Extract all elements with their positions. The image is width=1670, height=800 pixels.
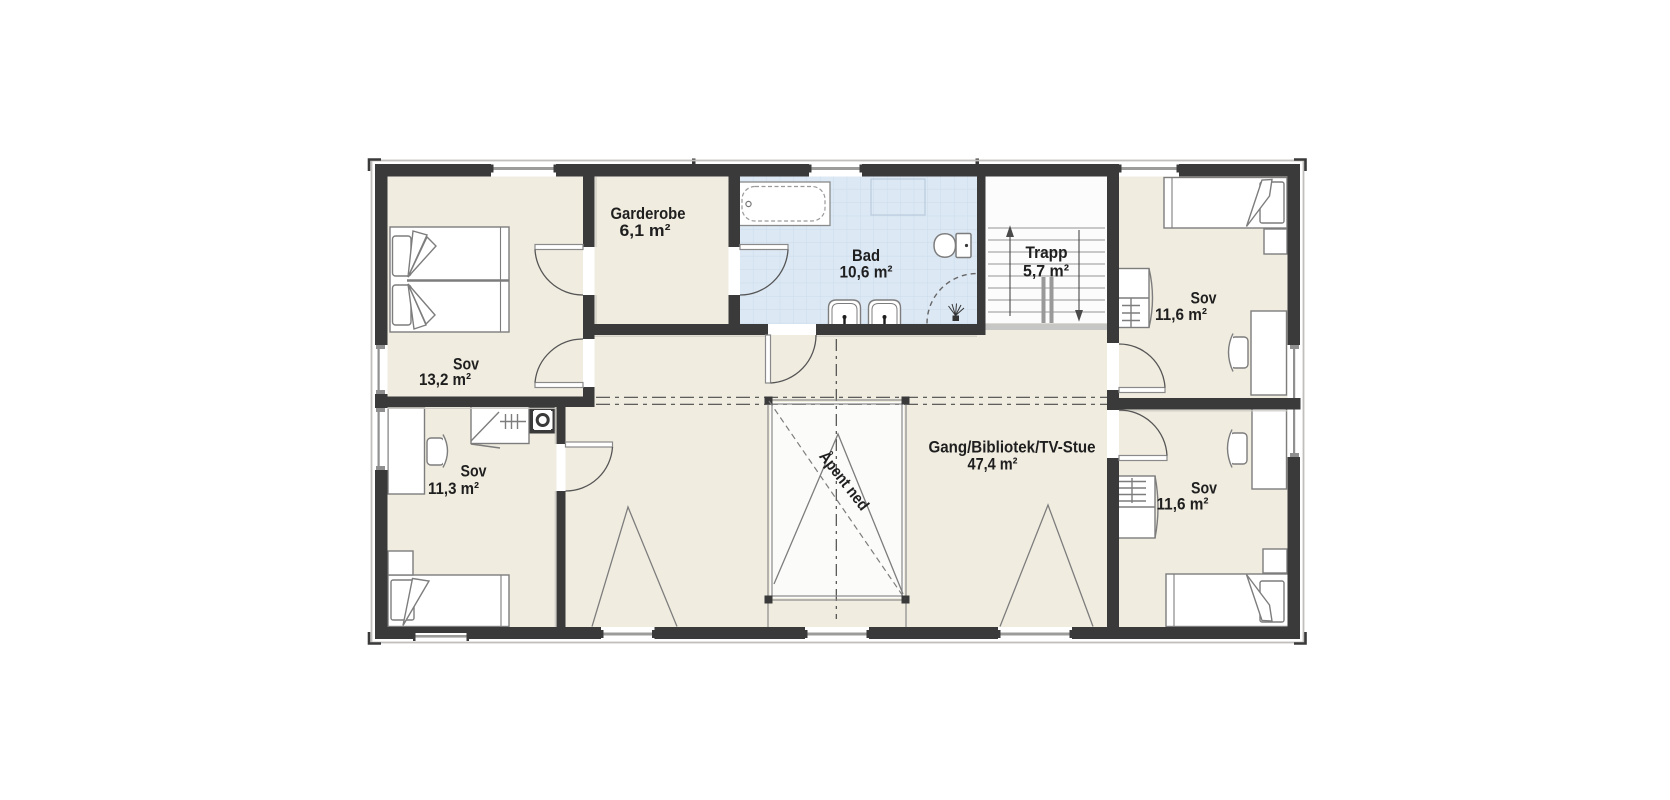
svg-text:10,6 m²: 10,6 m² [840,263,893,282]
svg-text:13,2 m²: 13,2 m² [419,370,471,389]
svg-text:11,3 m²: 11,3 m² [428,479,479,498]
svg-text:11,6 m²: 11,6 m² [1155,305,1207,324]
svg-text:6,1 m²: 6,1 m² [620,221,671,240]
svg-text:11,6 m²: 11,6 m² [1157,495,1209,514]
svg-text:Sov: Sov [461,462,487,481]
svg-text:47,4 m²: 47,4 m² [968,455,1018,474]
svg-text:Trapp: Trapp [1026,243,1068,262]
svg-text:5,7 m²: 5,7 m² [1023,262,1069,281]
